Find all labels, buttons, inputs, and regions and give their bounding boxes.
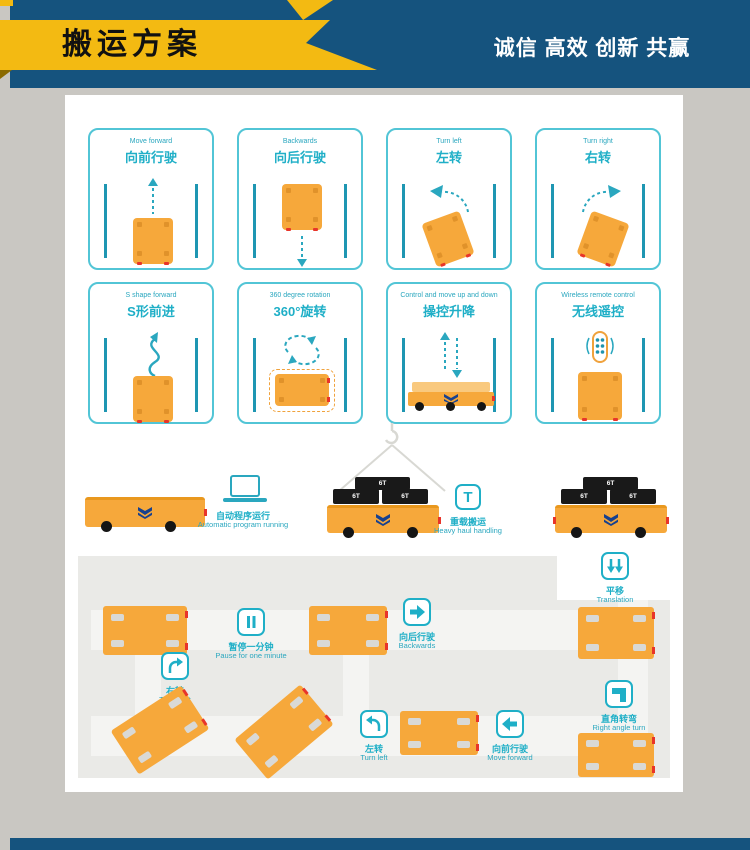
cargo-block: 6T bbox=[561, 489, 607, 504]
card-subtitle: 360 degree rotation bbox=[239, 292, 361, 299]
wheel bbox=[571, 527, 582, 538]
bolt bbox=[137, 222, 142, 227]
wheel bbox=[477, 402, 486, 411]
pad bbox=[408, 741, 421, 748]
agv-top-view bbox=[578, 607, 654, 659]
sensor-dot bbox=[164, 262, 169, 265]
double-down-arrow-glyph bbox=[604, 555, 626, 577]
lift-platform bbox=[412, 382, 490, 392]
track-rail bbox=[402, 184, 405, 258]
bolt bbox=[137, 380, 142, 385]
sensor-dot bbox=[385, 611, 388, 618]
pad bbox=[264, 755, 278, 769]
pad bbox=[166, 614, 179, 621]
turn-right-icon bbox=[161, 652, 189, 680]
bolt bbox=[608, 252, 614, 258]
right-angle-turn-icon bbox=[605, 680, 633, 708]
brand-logo bbox=[603, 514, 619, 526]
cargo-weight: 6T bbox=[607, 480, 615, 487]
bolt bbox=[279, 397, 284, 402]
bolt bbox=[452, 216, 458, 222]
curve-left-glyph bbox=[363, 713, 385, 735]
card-turn-left: Turn left 左转 bbox=[386, 128, 512, 270]
curve-right-arrow-icon bbox=[575, 182, 625, 214]
card-subtitle: Turn right bbox=[537, 138, 659, 145]
card-subtitle: S shape forward bbox=[90, 292, 212, 299]
ribbon-top-chip bbox=[0, 0, 13, 6]
bolt bbox=[286, 217, 291, 222]
sensor-dot bbox=[327, 378, 330, 383]
bolt bbox=[593, 216, 599, 222]
bolt bbox=[320, 378, 325, 383]
sensor-dot bbox=[137, 420, 142, 423]
sensor-dot bbox=[652, 647, 655, 654]
card-title: 操控升降 bbox=[388, 301, 510, 320]
card-lift-control: Control and move up and down 操控升降 bbox=[386, 282, 512, 424]
bolt bbox=[582, 376, 587, 381]
pad bbox=[586, 740, 599, 747]
track-rail bbox=[642, 338, 645, 412]
pause-label-en: Pause for one minute bbox=[196, 651, 306, 660]
card-title: 左转 bbox=[388, 147, 510, 166]
pad bbox=[168, 696, 183, 709]
pad bbox=[633, 763, 646, 770]
heavy-haul-label-en: Heavy haul handling bbox=[413, 526, 523, 535]
pad bbox=[111, 614, 124, 621]
card-subtitle: Control and move up and down bbox=[388, 292, 510, 299]
heavy-haul-letter: T bbox=[463, 489, 472, 506]
agv-top-view bbox=[421, 211, 474, 268]
wheel bbox=[635, 527, 646, 538]
road-mid-vertical bbox=[343, 650, 369, 716]
remote-control-icon bbox=[580, 330, 620, 368]
heavy-haul-icon: T bbox=[455, 484, 481, 510]
card-wireless-remote: Wireless remote control 无线遥控 bbox=[535, 282, 661, 424]
sensor-dot bbox=[666, 517, 669, 524]
track-rail bbox=[253, 184, 256, 258]
bolt bbox=[613, 407, 618, 412]
card-subtitle: Wireless remote control bbox=[537, 292, 659, 299]
sensor-dot bbox=[185, 643, 188, 650]
pad bbox=[586, 644, 599, 651]
sensor-dot bbox=[327, 397, 330, 402]
card-title: 360°旋转 bbox=[239, 301, 361, 320]
rotation-arrows-icon bbox=[281, 334, 323, 367]
sensor-dot bbox=[440, 262, 446, 267]
page-title: 搬运方案 bbox=[62, 20, 202, 70]
pad bbox=[633, 644, 646, 651]
track-rail bbox=[642, 184, 645, 258]
agv-top-view bbox=[576, 211, 629, 268]
cargo-weight: 6T bbox=[580, 493, 588, 500]
sensor-dot bbox=[185, 611, 188, 618]
cargo-weight: 6T bbox=[401, 493, 409, 500]
sensor-dot bbox=[652, 766, 655, 773]
cargo-weight: 6T bbox=[379, 480, 387, 487]
pad bbox=[317, 614, 330, 621]
bolt bbox=[137, 251, 142, 256]
bolt bbox=[582, 407, 587, 412]
down-arrow-icon bbox=[287, 234, 317, 268]
track-rail bbox=[104, 338, 107, 412]
translation-icon bbox=[601, 552, 629, 580]
pad bbox=[366, 614, 379, 621]
agv-top-view bbox=[133, 376, 173, 422]
agv-top-view bbox=[578, 372, 622, 420]
curve-left-arrow-icon bbox=[426, 182, 476, 214]
card-title: 无线遥控 bbox=[537, 301, 659, 320]
cargo-block: 6T bbox=[382, 489, 428, 504]
backwards-label-en: Backwards bbox=[362, 641, 472, 650]
sensor-dot bbox=[313, 228, 318, 231]
sensor-dot bbox=[652, 612, 655, 619]
pad bbox=[633, 740, 646, 747]
sensor-dot bbox=[580, 253, 586, 258]
card-title: 向后行驶 bbox=[239, 147, 361, 166]
bolt bbox=[320, 397, 325, 402]
arrow-left-glyph bbox=[499, 713, 521, 735]
pad bbox=[317, 640, 330, 647]
bolt bbox=[426, 225, 432, 231]
up-arrow-icon bbox=[138, 178, 168, 216]
bolt bbox=[164, 380, 169, 385]
wheel bbox=[101, 521, 112, 532]
track-rail bbox=[551, 184, 554, 258]
poster-page: 搬运方案 诚信 高效 创新 共赢 Move forward 向前行驶 bbox=[0, 0, 750, 850]
content-panel: Move forward 向前行驶 Backwards 向后行驶 bbox=[65, 95, 683, 792]
right-angle-label-en: Right angle turn bbox=[564, 723, 674, 732]
bolt bbox=[583, 243, 589, 249]
sensor-dot bbox=[553, 517, 556, 524]
pad bbox=[586, 763, 599, 770]
agv-top-view bbox=[103, 606, 187, 655]
pad bbox=[184, 721, 199, 734]
track-rail bbox=[551, 338, 554, 412]
agv-top-view bbox=[275, 374, 329, 406]
curve-right-glyph bbox=[164, 655, 186, 677]
sensor-dot bbox=[286, 228, 291, 231]
sensor-dot bbox=[137, 262, 142, 265]
track-rail bbox=[402, 338, 405, 412]
bolt bbox=[164, 251, 169, 256]
card-subtitle: Turn left bbox=[388, 138, 510, 145]
bolt bbox=[164, 409, 169, 414]
sensor-dot bbox=[476, 715, 479, 722]
track-rail bbox=[195, 184, 198, 258]
s-curve-arrow-icon bbox=[136, 332, 170, 378]
bolt bbox=[618, 225, 624, 231]
card-turn-right: Turn right 右转 bbox=[535, 128, 661, 270]
card-backwards: Backwards 向后行驶 bbox=[237, 128, 363, 270]
card-move-forward: Move forward 向前行驶 bbox=[88, 128, 214, 270]
bolt bbox=[137, 409, 142, 414]
pad bbox=[122, 726, 137, 739]
pause-glyph bbox=[240, 611, 262, 633]
brand-logo bbox=[137, 507, 153, 519]
move-forward-icon bbox=[496, 710, 524, 738]
pad bbox=[289, 696, 303, 710]
cargo-block: 6T bbox=[610, 489, 656, 504]
bolt bbox=[313, 188, 318, 193]
backwards-icon bbox=[403, 598, 431, 626]
wheel bbox=[165, 521, 176, 532]
bolt bbox=[462, 243, 468, 249]
bolt bbox=[279, 378, 284, 383]
wheel bbox=[415, 402, 424, 411]
pad bbox=[166, 640, 179, 647]
wheel bbox=[446, 402, 455, 411]
track-rail bbox=[344, 338, 347, 412]
company-slogan: 诚信 高效 创新 共赢 bbox=[468, 32, 716, 62]
pad bbox=[111, 640, 124, 647]
arrow-right-glyph bbox=[406, 601, 428, 623]
sensor-dot bbox=[652, 737, 655, 744]
brand-logo bbox=[375, 514, 391, 526]
bolt bbox=[164, 222, 169, 227]
sensor-dot bbox=[582, 418, 587, 421]
card-subtitle: Backwards bbox=[239, 138, 361, 145]
pad bbox=[586, 615, 599, 622]
track-rail bbox=[104, 184, 107, 258]
pad bbox=[633, 615, 646, 622]
agv-top-view bbox=[133, 218, 173, 264]
track-rail bbox=[253, 338, 256, 412]
translation-label-en: Translation bbox=[560, 595, 670, 604]
pad bbox=[308, 718, 322, 732]
card-s-shape-forward: S shape forward S形前进 bbox=[88, 282, 214, 424]
sensor-dot bbox=[492, 396, 495, 401]
pad bbox=[137, 751, 152, 764]
card-subtitle: Move forward bbox=[90, 138, 212, 145]
track-rail bbox=[195, 338, 198, 412]
sensor-dot bbox=[605, 262, 611, 267]
pad bbox=[457, 718, 470, 725]
sensor-dot bbox=[613, 418, 618, 421]
bolt bbox=[436, 252, 442, 258]
agv-top-view bbox=[282, 184, 322, 230]
pad bbox=[408, 718, 421, 725]
card-title: 向前行驶 bbox=[90, 147, 212, 166]
card-360-rotation: 360 degree rotation 360°旋转 bbox=[237, 282, 363, 424]
track-rail bbox=[344, 184, 347, 258]
cargo-weight: 6T bbox=[352, 493, 360, 500]
corner-glyph bbox=[608, 683, 630, 705]
bolt bbox=[613, 376, 618, 381]
cargo-block: 6T bbox=[333, 489, 379, 504]
cargo-weight: 6T bbox=[629, 493, 637, 500]
pad bbox=[246, 732, 260, 746]
bolt bbox=[286, 188, 291, 193]
bolt bbox=[313, 217, 318, 222]
card-title: 右转 bbox=[537, 147, 659, 166]
wheel bbox=[343, 527, 354, 538]
move-forward-label-en: Move forward bbox=[455, 753, 565, 762]
sensor-dot bbox=[164, 420, 169, 423]
card-title: S形前进 bbox=[90, 301, 212, 320]
agv-top-view bbox=[578, 733, 654, 777]
auto-run-label-en: Automatic program running bbox=[188, 520, 298, 529]
up-down-arrows-icon bbox=[435, 332, 467, 380]
turn-left-icon bbox=[360, 710, 388, 738]
footer-bar bbox=[10, 838, 750, 850]
laptop-icon bbox=[217, 474, 273, 506]
track-rail bbox=[493, 184, 496, 258]
sensor-dot bbox=[466, 253, 472, 258]
pause-icon bbox=[237, 608, 265, 636]
